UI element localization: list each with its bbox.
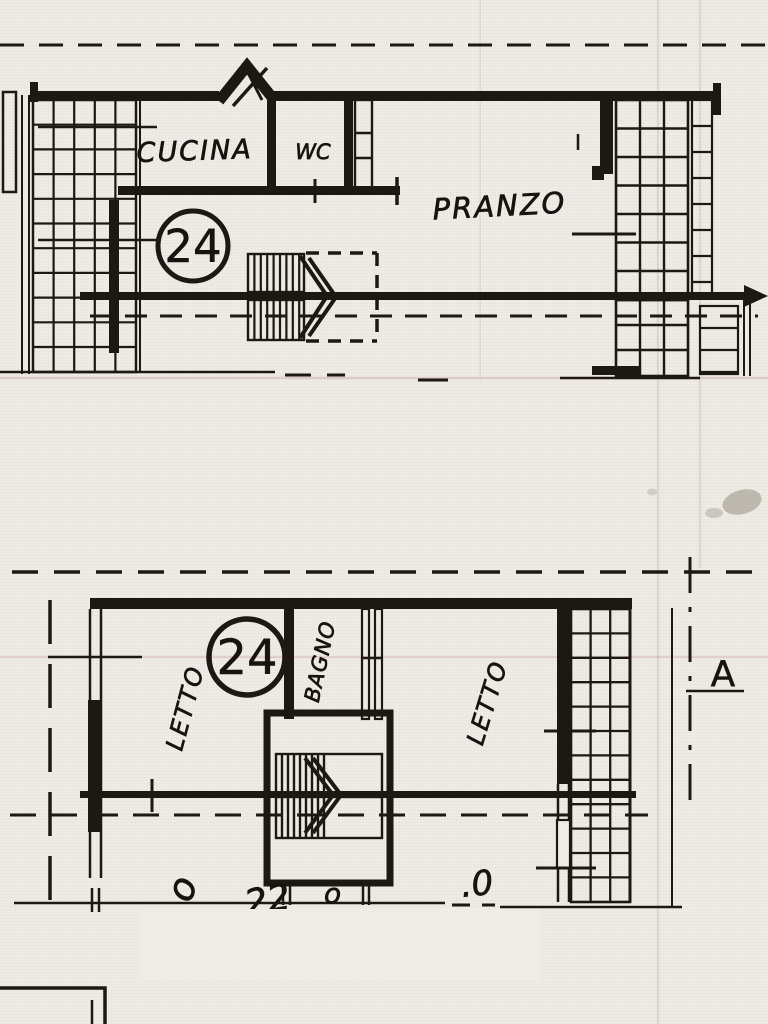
upper-balcony-railing-grid <box>33 100 136 372</box>
window-sash <box>557 820 570 868</box>
upper-east-window-grid-lower <box>616 300 688 376</box>
upper-east-ladder-column <box>692 100 712 298</box>
scanned-floor-plan-page: CUCINA WC PRANZO 24 <box>0 0 768 1024</box>
upper-east-window-grid <box>616 100 688 300</box>
section-marker-label: A <box>711 654 736 695</box>
wc-west-wall <box>267 100 276 188</box>
cutoff-label-4: .0 <box>459 863 495 906</box>
unit-number-upper: 24 <box>164 220 221 273</box>
lower-north-wall <box>90 598 632 609</box>
upper-section-cut-line <box>80 292 746 300</box>
cutoff-label-3: o <box>324 877 341 910</box>
adjacent-unit-outline <box>0 988 105 1024</box>
lower-east-window-grid <box>571 609 630 902</box>
section-line-arrowhead <box>744 285 768 307</box>
dining-east-wall <box>600 96 613 174</box>
scan-cut-mask <box>140 909 540 979</box>
room-label-bathroom: BAGNO <box>300 619 341 704</box>
lower-section-cut-line <box>80 791 636 798</box>
cutoff-label-1: o <box>157 870 206 907</box>
bathroom-east-wall-1 <box>362 609 369 719</box>
room-label-wc: WC <box>295 140 331 164</box>
room-label-bedroom-left: LETTO <box>161 662 210 753</box>
unit-number-lower: 24 <box>216 630 277 686</box>
duct-shaft <box>355 100 372 190</box>
upper-floor-plan: CUCINA WC PRANZO 24 <box>0 45 768 380</box>
scan-smudges <box>647 485 764 519</box>
wc-east-wall <box>344 100 353 190</box>
lower-floor-plan: A LETTO BAGNO LETTO 24 o 22 o .0 <box>10 557 768 979</box>
left-door-leaf <box>3 92 16 192</box>
floor-plan-scan: CUCINA WC PRANZO 24 <box>0 0 768 1024</box>
upper-left-wall-segment <box>109 200 119 353</box>
lower-east-wall <box>557 608 570 784</box>
room-label-dining: PRANZO <box>432 186 567 227</box>
room-label-bedroom-right: LETTO <box>461 657 513 748</box>
bathroom-east-wall-2 <box>375 609 382 719</box>
upper-top-wall-end-cap <box>713 83 721 115</box>
room-label-kitchen: CUCINA <box>136 134 253 169</box>
